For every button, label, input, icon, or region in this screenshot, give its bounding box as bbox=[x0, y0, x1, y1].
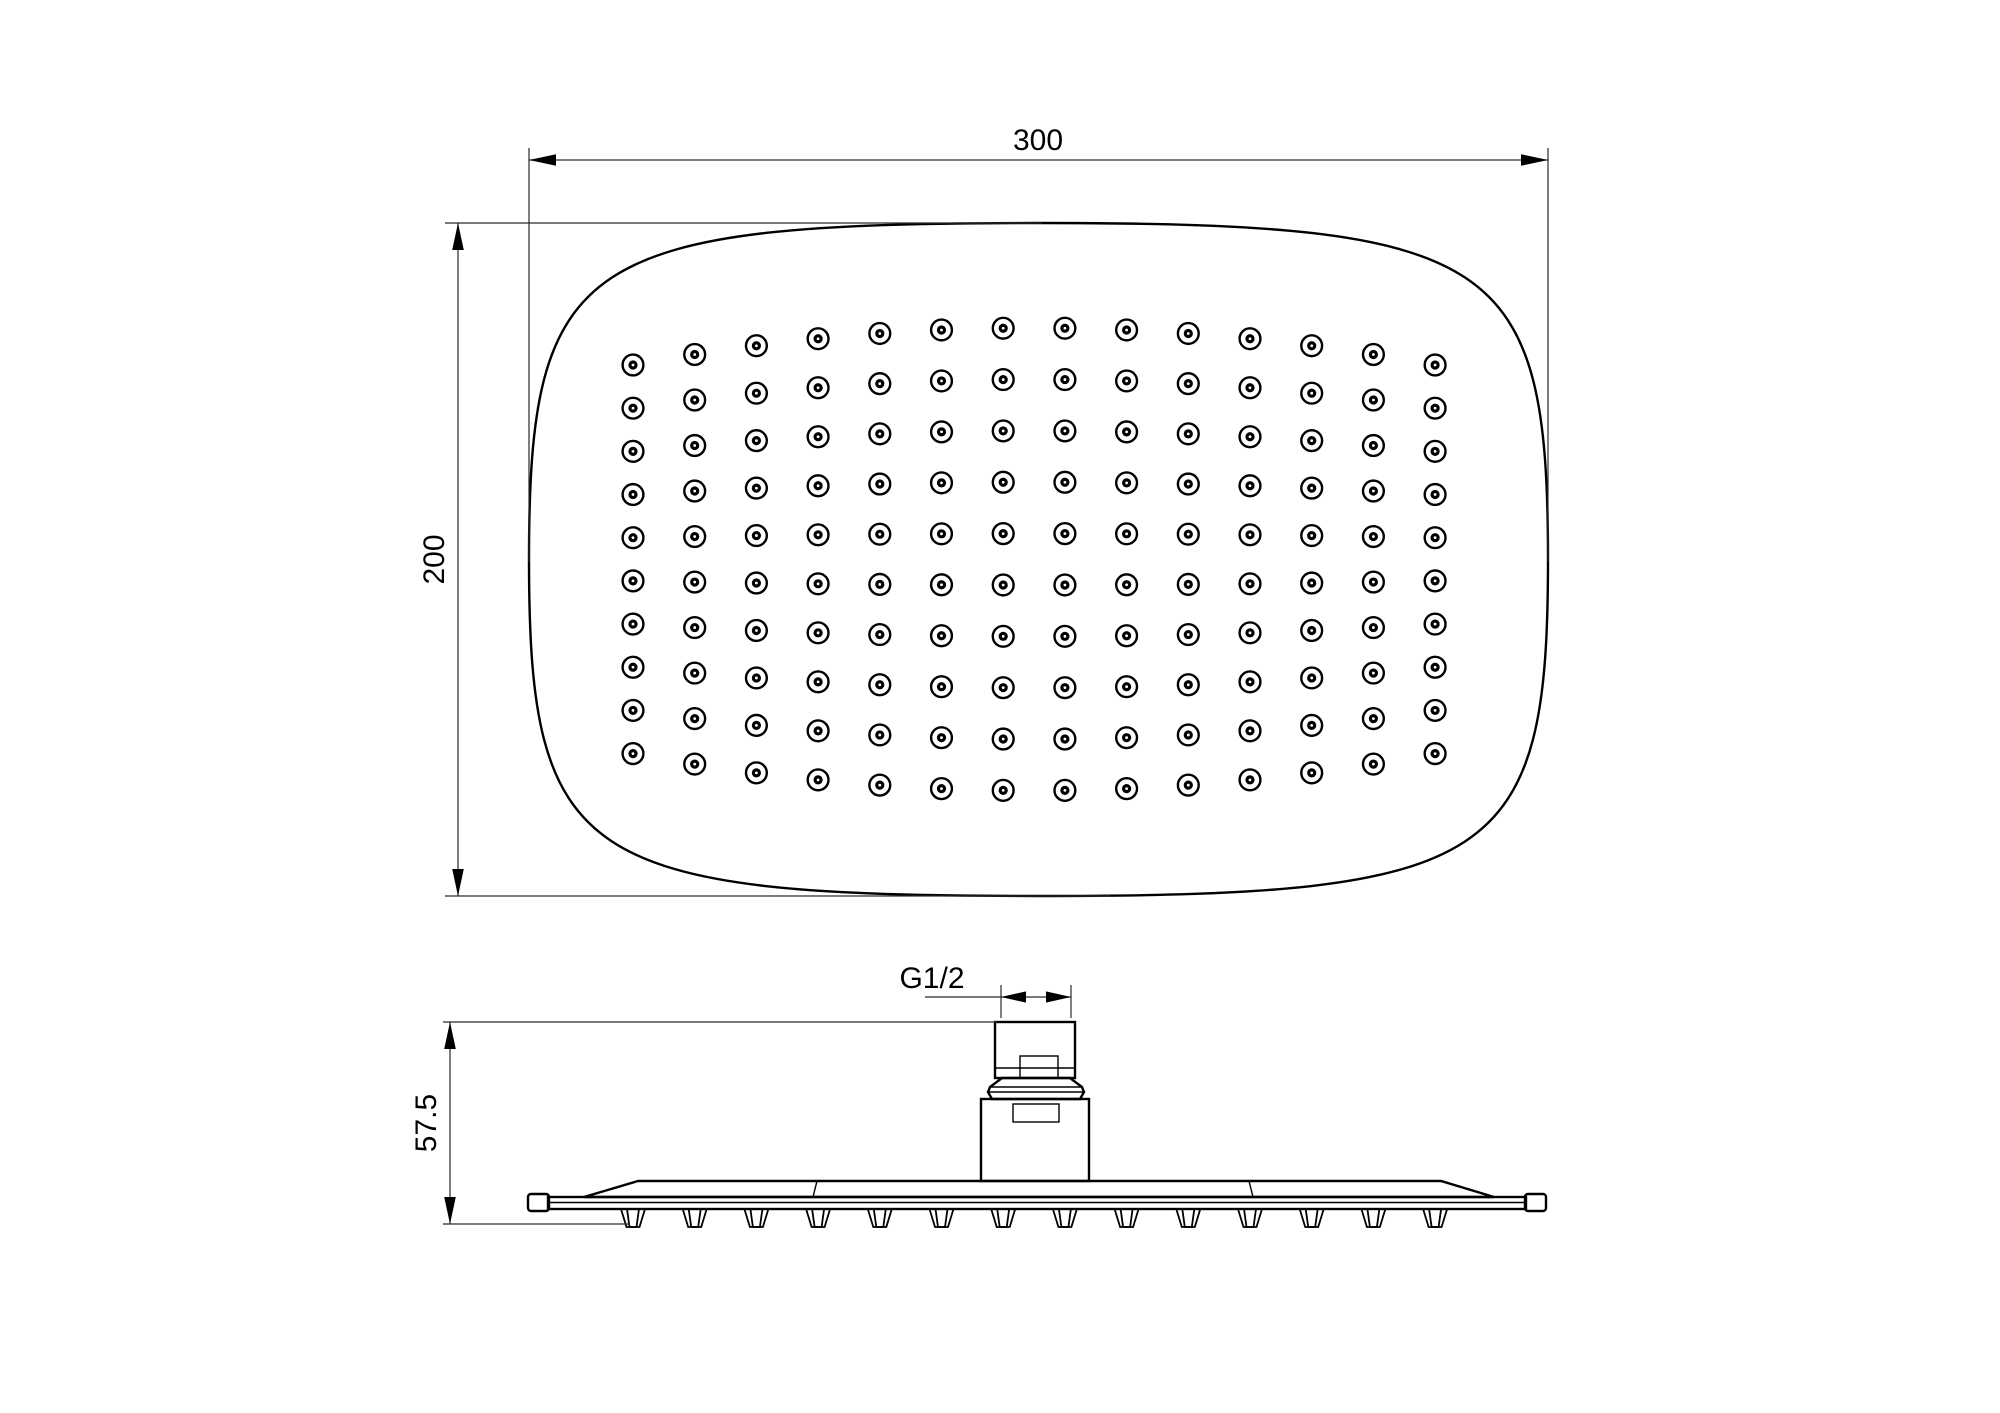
nozzle bbox=[1301, 383, 1322, 404]
connector-neck bbox=[981, 1022, 1089, 1181]
nozzle bbox=[1301, 668, 1322, 689]
nozzle bbox=[1240, 573, 1261, 594]
nozzle bbox=[993, 472, 1014, 493]
side-nozzle-bump bbox=[1053, 1209, 1077, 1227]
arrowhead-left bbox=[1001, 991, 1026, 1002]
nozzle bbox=[1363, 663, 1384, 684]
nozzle bbox=[1425, 570, 1446, 591]
nozzle bbox=[931, 523, 952, 544]
nozzle bbox=[746, 715, 767, 736]
side-nozzle-bump bbox=[683, 1209, 707, 1227]
nozzle bbox=[993, 318, 1014, 339]
nozzle bbox=[1116, 625, 1137, 646]
nozzle bbox=[1363, 754, 1384, 775]
nozzle bbox=[869, 775, 890, 796]
thread-dimension: G1/2 bbox=[899, 962, 1071, 1018]
arrowhead-down bbox=[444, 1197, 456, 1224]
nozzle bbox=[993, 523, 1014, 544]
nozzle bbox=[1178, 725, 1199, 746]
nozzle bbox=[808, 720, 829, 741]
nozzle bbox=[684, 526, 705, 547]
nozzle bbox=[1425, 700, 1446, 721]
nozzle bbox=[623, 570, 644, 591]
nozzle bbox=[684, 708, 705, 729]
arrowhead-down bbox=[452, 869, 464, 896]
nozzle bbox=[1178, 775, 1199, 796]
nozzle bbox=[808, 524, 829, 545]
nozzle bbox=[993, 369, 1014, 390]
nozzle bbox=[684, 481, 705, 502]
nozzle bbox=[931, 371, 952, 392]
nozzle bbox=[684, 663, 705, 684]
side-nozzle-bump bbox=[1059, 1209, 1071, 1227]
nozzle bbox=[1055, 369, 1076, 390]
side-nozzle-bump bbox=[1306, 1209, 1318, 1227]
nozzle bbox=[808, 622, 829, 643]
nozzle bbox=[746, 383, 767, 404]
nozzle bbox=[1301, 715, 1322, 736]
plate-end-cap-right bbox=[1525, 1194, 1546, 1211]
nozzle bbox=[1178, 323, 1199, 344]
nozzle bbox=[1178, 574, 1199, 595]
thread-cylinder bbox=[995, 1022, 1075, 1078]
nozzle bbox=[808, 475, 829, 496]
drawing-sheet: 300 200 bbox=[0, 0, 2000, 1413]
plate-outline bbox=[529, 223, 1548, 896]
nozzle bbox=[808, 573, 829, 594]
nozzle bbox=[808, 377, 829, 398]
nozzle bbox=[1055, 677, 1076, 698]
nozzle bbox=[1116, 676, 1137, 697]
nozzle bbox=[931, 320, 952, 341]
nozzle bbox=[1425, 484, 1446, 505]
nozzle bbox=[746, 335, 767, 356]
side-nozzle-bump bbox=[750, 1209, 762, 1227]
set-screw-lower bbox=[1013, 1104, 1059, 1122]
width-dim-label: 300 bbox=[1013, 124, 1063, 157]
side-nozzle-bump bbox=[689, 1209, 701, 1227]
side-nozzle-bump bbox=[1238, 1209, 1262, 1227]
nozzle bbox=[1363, 572, 1384, 593]
side-nozzle-bump bbox=[936, 1209, 948, 1227]
side-nozzle-bump bbox=[812, 1209, 824, 1227]
nozzle bbox=[808, 328, 829, 349]
plate-top-face bbox=[584, 1181, 1494, 1197]
height-dim-label: 200 bbox=[418, 534, 451, 584]
neck-body bbox=[981, 1099, 1089, 1181]
nozzle bbox=[1240, 769, 1261, 790]
nozzle bbox=[623, 441, 644, 462]
nozzle bbox=[1055, 729, 1076, 750]
nozzle bbox=[1425, 657, 1446, 678]
side-nozzle-bump bbox=[868, 1209, 892, 1227]
nozzle bbox=[1240, 671, 1261, 692]
nozzle bbox=[684, 754, 705, 775]
arrowhead-up bbox=[444, 1022, 456, 1049]
side-nozzle-bump bbox=[806, 1209, 830, 1227]
nozzle bbox=[746, 668, 767, 689]
nozzle bbox=[1363, 344, 1384, 365]
nozzle bbox=[931, 472, 952, 493]
nozzle bbox=[1116, 574, 1137, 595]
plate-end-cap-left bbox=[528, 1194, 549, 1211]
side-nozzle-bump bbox=[1115, 1209, 1139, 1227]
nozzle bbox=[869, 624, 890, 645]
nozzle bbox=[623, 355, 644, 376]
nozzle bbox=[1363, 481, 1384, 502]
nozzle bbox=[1425, 441, 1446, 462]
top-face-seam bbox=[813, 1181, 817, 1197]
nozzle bbox=[931, 778, 952, 799]
side-height-dim-label: 57.5 bbox=[410, 1094, 443, 1152]
side-nozzle-bump bbox=[997, 1209, 1009, 1227]
nozzle bbox=[993, 575, 1014, 596]
set-screw-upper bbox=[1020, 1056, 1058, 1078]
nozzle bbox=[1301, 573, 1322, 594]
side-nozzle-bump bbox=[1121, 1209, 1133, 1227]
nozzle bbox=[684, 435, 705, 456]
nozzle bbox=[746, 762, 767, 783]
width-dimension: 300 bbox=[529, 124, 1548, 562]
nozzle bbox=[1055, 318, 1076, 339]
nozzle bbox=[623, 398, 644, 419]
side-nozzle-bump bbox=[1423, 1209, 1447, 1227]
nozzle bbox=[869, 373, 890, 394]
nozzle bbox=[623, 527, 644, 548]
nozzle bbox=[684, 344, 705, 365]
nozzle bbox=[1055, 523, 1076, 544]
side-view: G1/2 57.5 bbox=[410, 962, 1546, 1227]
nozzle bbox=[1055, 421, 1076, 442]
nozzle bbox=[1178, 423, 1199, 444]
nozzle bbox=[1240, 426, 1261, 447]
nozzle bbox=[1240, 720, 1261, 741]
nozzle bbox=[1178, 674, 1199, 695]
nozzle bbox=[1425, 527, 1446, 548]
nozzle bbox=[1363, 708, 1384, 729]
arrowhead-up bbox=[452, 223, 464, 250]
nozzle bbox=[1301, 525, 1322, 546]
side-nozzle-bump bbox=[1367, 1209, 1379, 1227]
nozzle bbox=[1116, 371, 1137, 392]
arrowhead-right bbox=[1521, 154, 1548, 166]
nozzle bbox=[993, 677, 1014, 698]
side-nozzle-bumps bbox=[621, 1209, 1447, 1227]
side-nozzle-bump bbox=[1429, 1209, 1441, 1227]
nozzle bbox=[746, 620, 767, 641]
nozzle bbox=[1116, 778, 1137, 799]
nozzle bbox=[684, 617, 705, 638]
side-nozzle-bump bbox=[874, 1209, 886, 1227]
nozzle bbox=[1363, 390, 1384, 411]
nozzle bbox=[623, 657, 644, 678]
nozzle bbox=[1055, 575, 1076, 596]
arrowhead-right bbox=[1046, 991, 1071, 1002]
nozzle bbox=[1301, 762, 1322, 783]
nozzle bbox=[1363, 435, 1384, 456]
top-face-seam bbox=[1249, 1181, 1253, 1197]
side-nozzle-bump bbox=[1176, 1209, 1200, 1227]
nozzle bbox=[1240, 328, 1261, 349]
nozzle bbox=[1301, 335, 1322, 356]
swivel-collar bbox=[988, 1078, 1084, 1099]
nozzle bbox=[746, 525, 767, 546]
nozzle bbox=[1178, 373, 1199, 394]
nozzle bbox=[1055, 472, 1076, 493]
nozzle bbox=[808, 671, 829, 692]
nozzle bbox=[869, 674, 890, 695]
nozzle bbox=[1240, 475, 1261, 496]
side-nozzle-bump bbox=[930, 1209, 954, 1227]
nozzle bbox=[623, 743, 644, 764]
side-nozzle-bump bbox=[1361, 1209, 1385, 1227]
side-nozzle-bump bbox=[1244, 1209, 1256, 1227]
nozzle bbox=[931, 625, 952, 646]
side-height-dimension: 57.5 bbox=[410, 1022, 997, 1224]
nozzle bbox=[1055, 626, 1076, 647]
nozzle bbox=[1240, 377, 1261, 398]
nozzle bbox=[869, 725, 890, 746]
nozzle bbox=[1055, 780, 1076, 801]
nozzle bbox=[623, 700, 644, 721]
nozzle bbox=[1116, 421, 1137, 442]
nozzle bbox=[684, 390, 705, 411]
nozzle bbox=[993, 780, 1014, 801]
nozzle bbox=[1425, 398, 1446, 419]
nozzle bbox=[746, 573, 767, 594]
nozzle-grid bbox=[623, 318, 1446, 801]
nozzle bbox=[993, 421, 1014, 442]
technical-drawing-svg: 300 200 bbox=[0, 0, 2000, 1413]
arrowhead-left bbox=[529, 154, 556, 166]
nozzle bbox=[1116, 523, 1137, 544]
side-nozzle-bump bbox=[744, 1209, 768, 1227]
nozzle bbox=[869, 423, 890, 444]
nozzle bbox=[931, 574, 952, 595]
nozzle bbox=[623, 484, 644, 505]
nozzle bbox=[931, 676, 952, 697]
nozzle bbox=[808, 426, 829, 447]
nozzle bbox=[869, 574, 890, 595]
nozzle bbox=[1240, 622, 1261, 643]
nozzle bbox=[684, 572, 705, 593]
nozzle bbox=[1363, 526, 1384, 547]
nozzle bbox=[1178, 524, 1199, 545]
nozzle bbox=[808, 769, 829, 790]
nozzle bbox=[993, 729, 1014, 750]
nozzle bbox=[931, 727, 952, 748]
nozzle bbox=[1178, 474, 1199, 495]
nozzle bbox=[1240, 524, 1261, 545]
nozzle bbox=[746, 478, 767, 499]
side-nozzle-bump bbox=[991, 1209, 1015, 1227]
nozzle bbox=[869, 524, 890, 545]
nozzle bbox=[1116, 320, 1137, 341]
nozzle bbox=[1116, 727, 1137, 748]
nozzle bbox=[1301, 620, 1322, 641]
nozzle bbox=[869, 323, 890, 344]
thread-dim-label: G1/2 bbox=[899, 962, 964, 995]
nozzle bbox=[993, 626, 1014, 647]
nozzle bbox=[1425, 355, 1446, 376]
nozzle bbox=[1301, 478, 1322, 499]
nozzle bbox=[1116, 472, 1137, 493]
nozzle bbox=[1363, 617, 1384, 638]
side-nozzle-bump bbox=[1182, 1209, 1194, 1227]
side-nozzle-bump bbox=[1300, 1209, 1324, 1227]
nozzle bbox=[746, 430, 767, 451]
nozzle bbox=[869, 474, 890, 495]
nozzle bbox=[1301, 430, 1322, 451]
top-view: 300 200 bbox=[418, 124, 1548, 896]
nozzle bbox=[623, 614, 644, 635]
nozzle bbox=[1178, 624, 1199, 645]
nozzle bbox=[1425, 614, 1446, 635]
nozzle bbox=[931, 421, 952, 442]
nozzle bbox=[1425, 743, 1446, 764]
